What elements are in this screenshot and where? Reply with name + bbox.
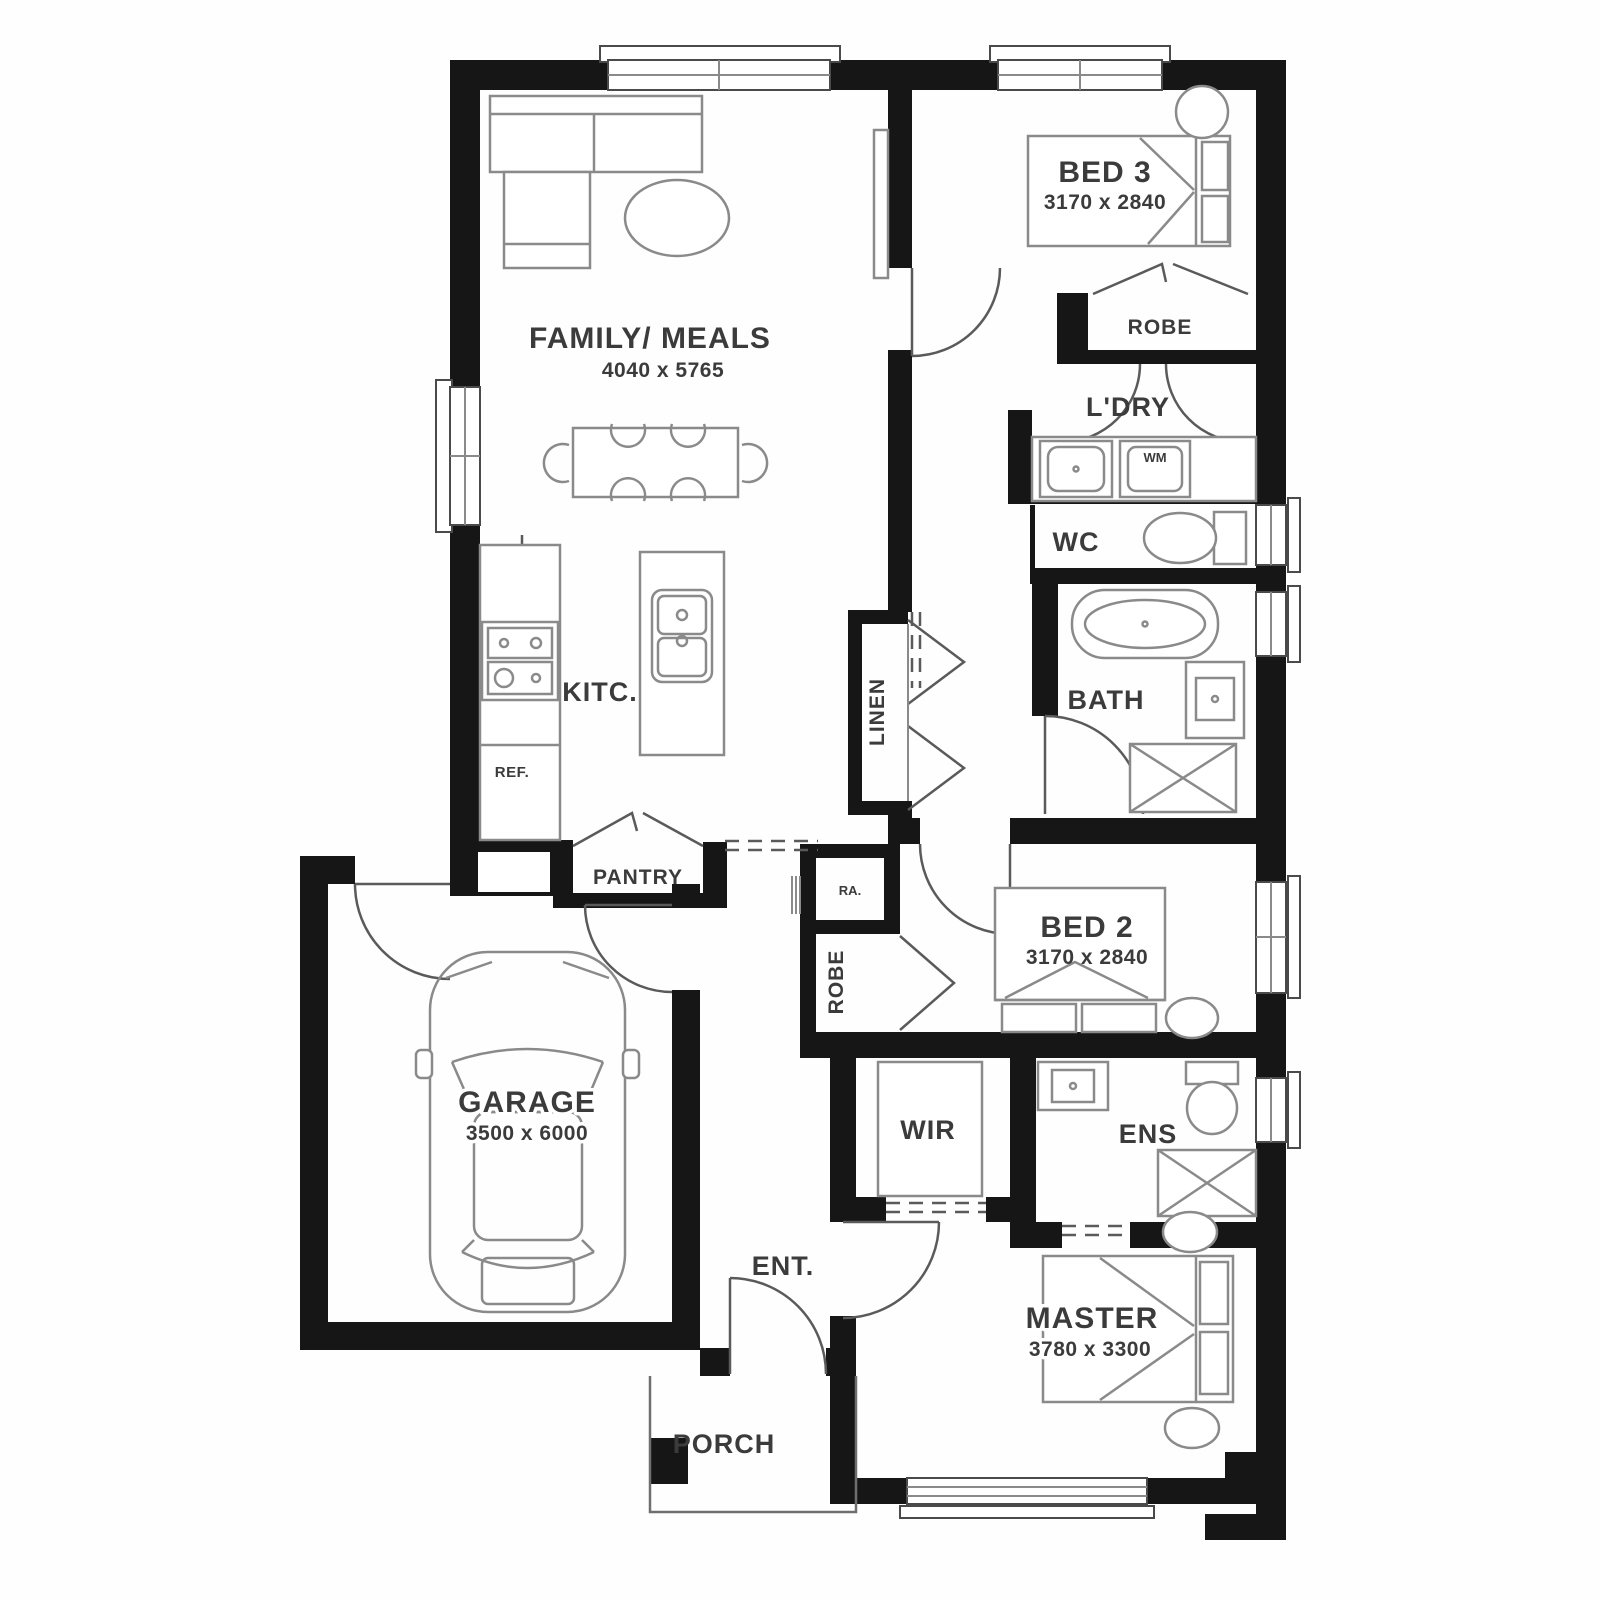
linen-label: LINEN [866, 678, 889, 746]
ens-window [1256, 1072, 1300, 1148]
laundry-sink [1040, 441, 1112, 497]
bathtub [1072, 590, 1218, 658]
family-label: FAMILY/ MEALS [529, 322, 771, 355]
linen-doors [908, 620, 964, 810]
wir-label: WIR [900, 1115, 955, 1145]
bed3-dims: 3170 x 2840 [1044, 191, 1166, 214]
family-dims: 4040 x 5765 [602, 359, 724, 382]
family-side-window [436, 380, 480, 532]
master-door [843, 1222, 939, 1318]
ra-grille [792, 876, 800, 914]
bed2-label: BED 2 [1040, 911, 1133, 944]
tv-niche [874, 130, 888, 278]
garage-side-door [355, 884, 450, 979]
bath-shower [1130, 744, 1236, 812]
dining-table-chairs [544, 424, 767, 501]
bed3-side-table [1176, 86, 1228, 138]
master-dims: 3780 x 3300 [1029, 1338, 1151, 1361]
wc-toilet [1144, 512, 1246, 564]
bed2-dims: 3170 x 2840 [1026, 946, 1148, 969]
family-furniture [490, 96, 888, 501]
master-label: MASTER [1026, 1302, 1159, 1335]
wc-window [1256, 498, 1300, 572]
laundry-fixtures [1032, 437, 1256, 501]
porch-label: PORCH [673, 1429, 776, 1459]
pantry-label: PANTRY [593, 866, 683, 889]
entry-label: ENT. [752, 1251, 815, 1281]
robe3-label: ROBE [1128, 316, 1193, 339]
pantry-bifold-doors [573, 813, 703, 846]
front-door [730, 1278, 826, 1374]
master-side-table-top [1163, 1212, 1217, 1252]
fridge-label: REF. [495, 764, 530, 781]
bed2-window [1256, 876, 1300, 998]
hall-door [912, 268, 1000, 356]
wc-fixtures [1144, 512, 1246, 564]
bed3-label: BED 3 [1058, 156, 1151, 189]
garage-internal-door [585, 905, 672, 992]
cooktop [482, 622, 558, 700]
ens-vanity [1038, 1062, 1108, 1110]
robe3-bifold-doors [1093, 264, 1248, 294]
bath-label: BATH [1068, 685, 1145, 715]
ens-shower [1158, 1150, 1256, 1216]
robe2-label: ROBE [825, 950, 848, 1015]
coffee-table [625, 180, 729, 256]
ens-toilet [1186, 1062, 1238, 1134]
master-side-table-bottom [1165, 1408, 1219, 1448]
floor-plan-drawing: FAMILY/ MEALS 4040 x 5765 BED 3 3170 x 2… [0, 0, 1600, 1600]
ens-label: ENS [1119, 1119, 1178, 1149]
wc-label: WC [1053, 527, 1100, 557]
bath-door [1045, 716, 1143, 814]
robe2-bifold-doors [900, 936, 954, 1030]
ldry-label: L'DRY [1086, 392, 1170, 422]
bed2-bed [995, 888, 1165, 1000]
garage-dims: 3500 x 6000 [466, 1122, 588, 1145]
wm-label: WM [1143, 450, 1166, 465]
bed2-side-table [1166, 998, 1218, 1038]
kitchen-label: KITC. [562, 677, 638, 707]
bath-window [1256, 586, 1300, 662]
family-window [600, 46, 840, 90]
ra-label: RA. [839, 883, 861, 898]
master-window [900, 1478, 1154, 1518]
floor-plan-page: FAMILY/ MEALS 4040 x 5765 BED 3 3170 x 2… [0, 0, 1600, 1600]
bed3-window [990, 46, 1170, 90]
bath-vanity [1186, 662, 1244, 738]
kitchen-island [640, 552, 724, 755]
garage-label: GARAGE [458, 1086, 596, 1119]
